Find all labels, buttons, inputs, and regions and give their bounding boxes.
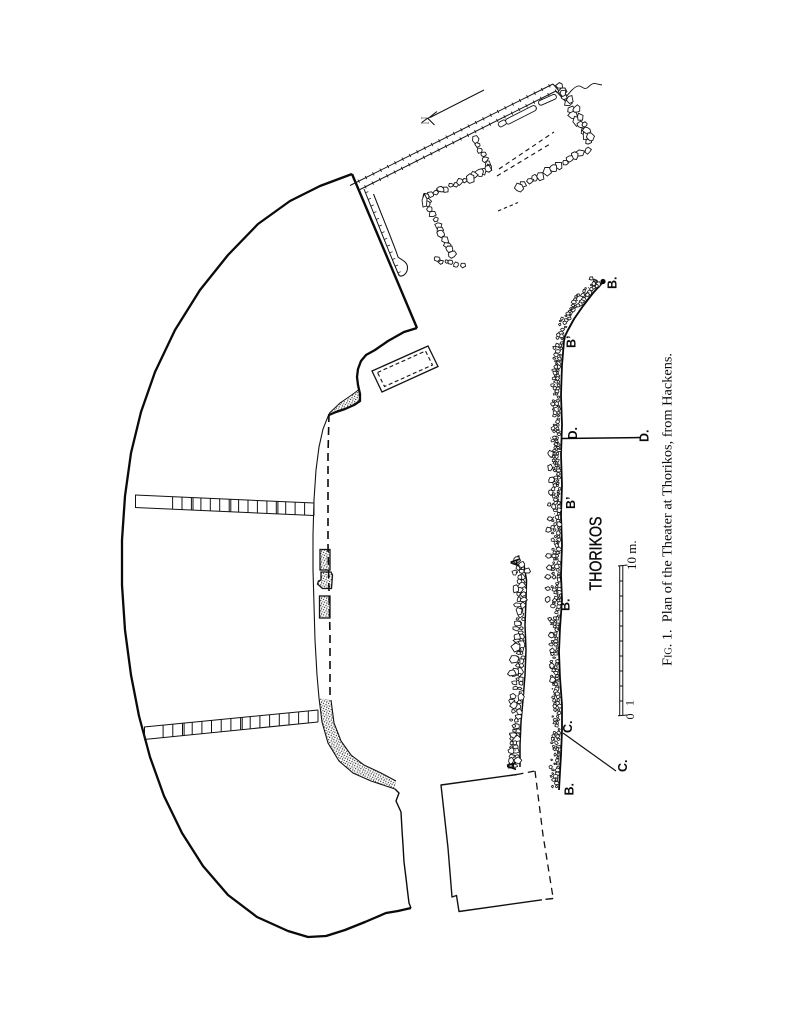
svg-text:C.: C. [561, 721, 575, 734]
svg-text:C.: C. [616, 760, 630, 773]
svg-text:B.: B. [606, 277, 620, 290]
svg-text:1: 1 [623, 700, 637, 706]
svg-text:A: A [505, 761, 519, 770]
svg-text:N: N [420, 117, 432, 125]
svg-text:10 m.: 10 m. [624, 540, 639, 570]
svg-text:A.: A. [509, 555, 523, 568]
svg-text:B’: B’ [564, 497, 578, 510]
svg-text:B’: B’ [565, 336, 579, 349]
svg-text:B.: B. [563, 783, 577, 796]
svg-text:D.: D. [638, 430, 652, 443]
svg-text:THORIKOS: THORIKOS [586, 517, 606, 591]
svg-text:0: 0 [623, 714, 637, 720]
svg-text:B.: B. [559, 599, 573, 612]
svg-text:Fig. 1. Plan of the Theater a: Fig. 1. Plan of the Theater at Thorikos,… [661, 353, 676, 666]
svg-text:D.: D. [566, 427, 580, 440]
